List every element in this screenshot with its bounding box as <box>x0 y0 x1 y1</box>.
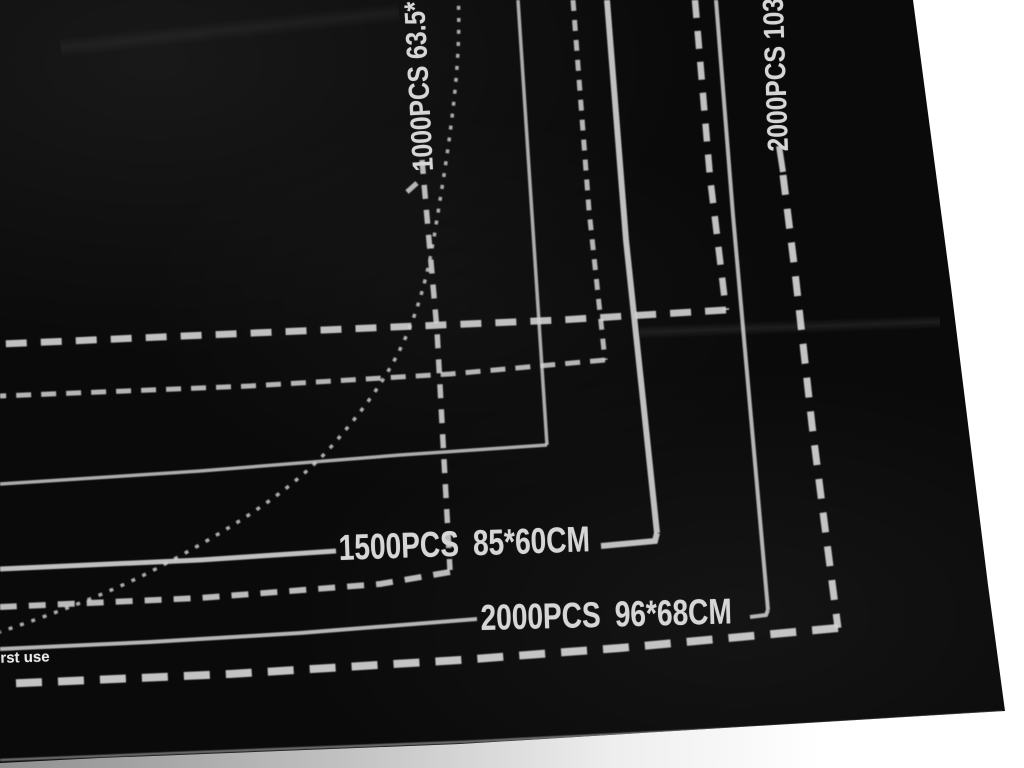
size-label-1500pcs-count: 1500PCS <box>338 523 460 568</box>
solid-1500-right-edge <box>607 0 657 533</box>
thin-solid-right-edge <box>518 0 547 445</box>
size-label-2000pcs-dimensions: 96*68CM <box>614 590 732 634</box>
instructions-text-first-use: first use <box>0 648 50 667</box>
puzzle-mat: 1000PCS 63.5* 2000PCS 103 1500PCS85*60CM… <box>0 0 1024 768</box>
size-label-2000pcs-top: 2000PCS 103 <box>758 0 796 152</box>
solid-1500-bottom-edge <box>0 551 336 569</box>
dashed-mid-right-edge <box>573 0 605 360</box>
dashed-1000-label-stub <box>407 183 417 192</box>
dashed-thick-bottom-edge <box>0 310 726 344</box>
solid-2000-bottom-edge <box>0 619 477 649</box>
dashed-mid-bottom-edge <box>0 360 605 396</box>
solid-2000-corner-stub <box>750 610 768 617</box>
size-guide-lines <box>0 0 1024 768</box>
thin-solid-bottom-edge <box>0 445 547 484</box>
product-photo: 1000PCS 63.5* 2000PCS 103 1500PCS85*60CM… <box>0 0 1024 768</box>
outer-dashed-right-edge <box>783 175 838 628</box>
solid-1500-corner-stub <box>601 533 657 546</box>
size-label-2000pcs-count: 2000PCS <box>480 594 601 638</box>
size-label-1500pcs: 1500PCS85*60CM <box>338 518 591 569</box>
dashed-1000-bottom-edge <box>0 572 450 607</box>
outer-dashed-bottom-edge <box>0 628 838 684</box>
size-label-1500pcs-dimensions: 85*60CM <box>472 518 590 563</box>
size-label-2000pcs-bottom: 2000PCS96*68CM <box>480 590 732 639</box>
